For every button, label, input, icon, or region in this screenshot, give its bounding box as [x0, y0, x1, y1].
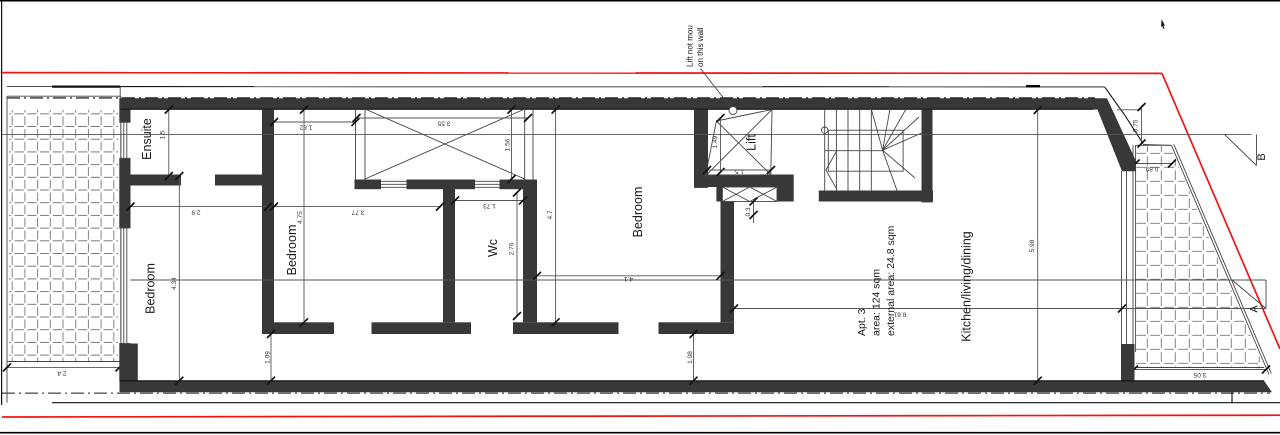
svg-text:2.4: 2.4	[57, 369, 66, 376]
svg-text:1.5: 1.5	[735, 167, 744, 174]
svg-text:1.09: 1.09	[265, 351, 272, 364]
svg-text:0.3: 0.3	[745, 207, 752, 216]
svg-text:2.9: 2.9	[191, 208, 200, 215]
svg-text:area: 124 sqm: area: 124 sqm	[871, 269, 883, 336]
svg-text:Bedroom: Bedroom	[285, 225, 299, 276]
svg-text:Kitchen/living/dining: Kitchen/living/dining	[960, 231, 974, 342]
svg-text:0.89: 0.89	[1145, 165, 1158, 172]
svg-text:4.75: 4.75	[297, 211, 304, 224]
svg-text:1.08: 1.08	[687, 351, 694, 364]
svg-text:1.73: 1.73	[483, 202, 496, 209]
svg-text:external area: 24.8 sqm: external area: 24.8 sqm	[885, 225, 897, 336]
svg-text:Apt. 3: Apt. 3	[856, 308, 868, 336]
svg-text:A: A	[1249, 305, 1261, 313]
svg-text:1.49: 1.49	[712, 135, 719, 148]
svg-text:Lift not mou: Lift not mou	[686, 25, 695, 67]
svg-text:1.56: 1.56	[505, 138, 512, 151]
svg-text:1.82: 1.82	[299, 124, 312, 131]
svg-text:Ensuite: Ensuite	[140, 118, 154, 160]
svg-text:2.76: 2.76	[509, 242, 516, 255]
svg-text:0.75: 0.75	[1133, 119, 1140, 132]
svg-text:4.1: 4.1	[624, 275, 633, 282]
svg-text:3.77: 3.77	[351, 208, 364, 215]
svg-text:B: B	[1256, 153, 1268, 160]
svg-text:Lift: Lift	[745, 134, 759, 151]
svg-text:on this wall: on this wall	[696, 27, 705, 67]
svg-text:3.55: 3.55	[437, 120, 450, 127]
svg-text:4.7: 4.7	[547, 210, 554, 219]
svg-text:5.98: 5.98	[1029, 239, 1036, 252]
svg-text:3.05: 3.05	[1193, 371, 1206, 378]
svg-text:1.5: 1.5	[160, 130, 167, 139]
svg-text:Wc: Wc	[486, 239, 500, 257]
svg-text:Bedroom: Bedroom	[631, 187, 645, 238]
svg-text:4.34: 4.34	[171, 277, 178, 290]
svg-text:Bedroom: Bedroom	[144, 263, 158, 314]
